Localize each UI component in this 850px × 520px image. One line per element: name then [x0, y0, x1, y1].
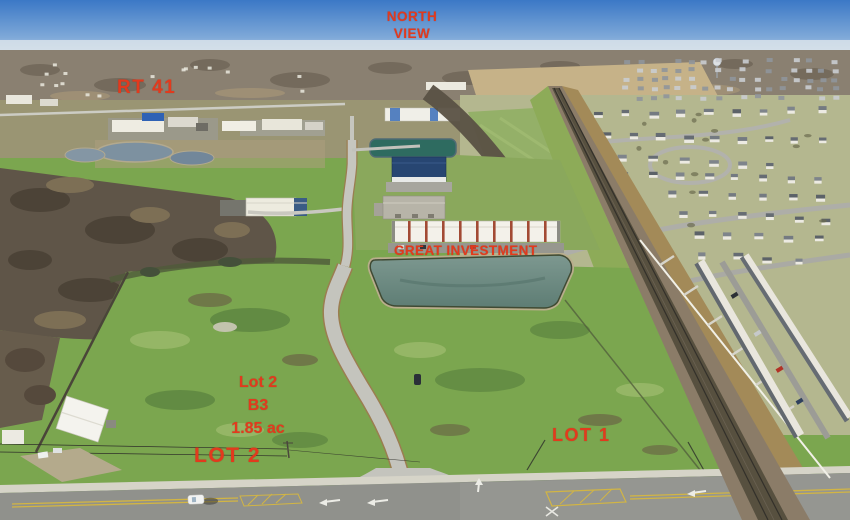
annotation-lot2-label: LOT 2 — [194, 444, 261, 468]
annotation-north-view: NORTH VIEW — [370, 8, 454, 42]
annotation-great-investment: GREAT INVESTMENT — [394, 243, 537, 258]
annotation-lot2-details: Lot 2 B3 1.85 ac — [208, 371, 308, 440]
annotation-lot2-acreage: 1.85 ac — [208, 417, 308, 440]
aerial-listing-photo: NORTH VIEW RT 41 GREAT INVESTMENT Lot 2 … — [0, 0, 850, 520]
annotation-north-line1: NORTH — [387, 9, 438, 24]
annotation-lot2-zoning: B3 — [208, 394, 308, 417]
annotation-lot2-name: Lot 2 — [208, 371, 308, 394]
annotation-rt-41: RT 41 — [117, 77, 176, 99]
pond — [370, 255, 571, 308]
annotation-north-line2: VIEW — [394, 26, 431, 41]
annotation-lot1-label: LOT 1 — [552, 425, 611, 446]
